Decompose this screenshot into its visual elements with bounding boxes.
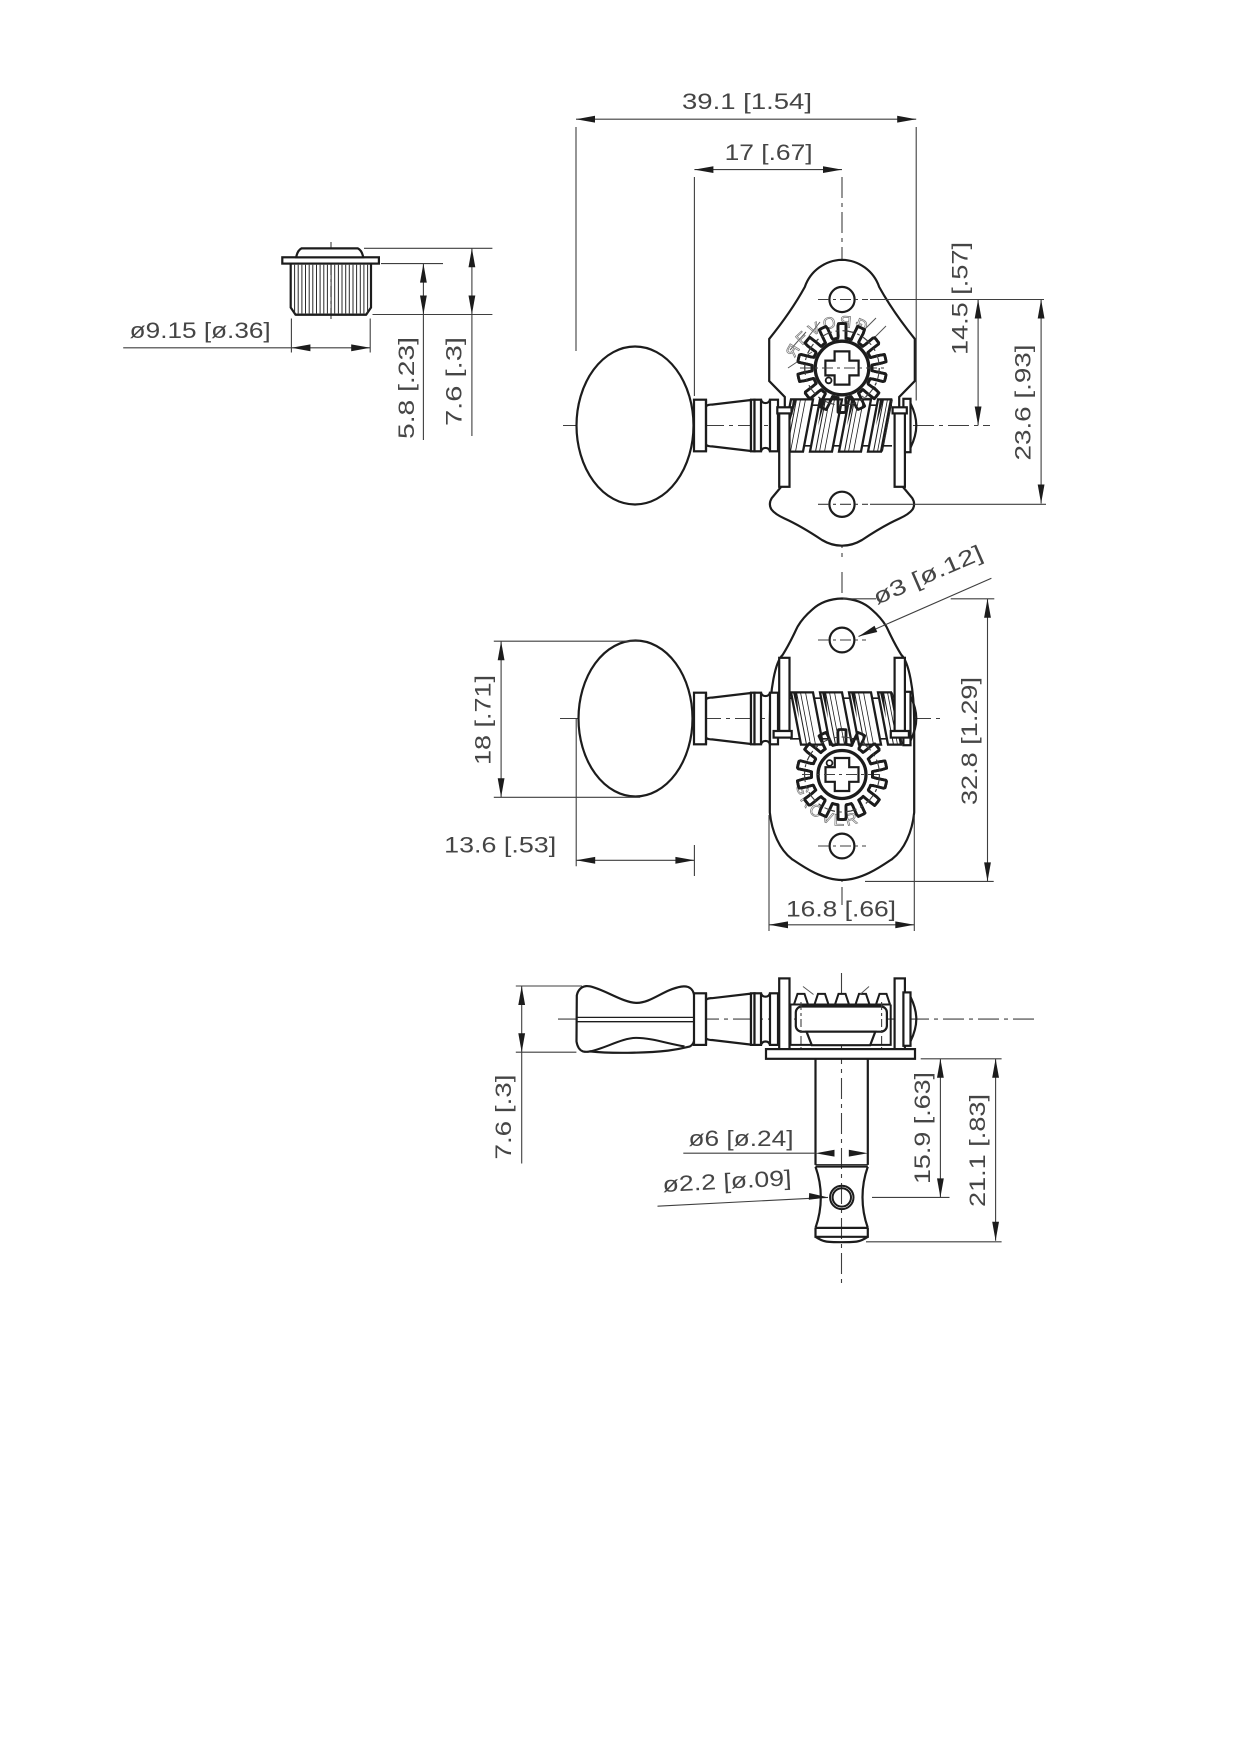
svg-text:18 [.71]: 18 [.71]	[471, 675, 496, 765]
svg-text:13.6 [.53]: 13.6 [.53]	[444, 832, 556, 857]
svg-text:16.8 [.66]: 16.8 [.66]	[786, 897, 896, 922]
svg-text:ø9.15 [ø.36]: ø9.15 [ø.36]	[130, 318, 271, 343]
svg-text:15.9 [.63]: 15.9 [.63]	[910, 1072, 935, 1184]
svg-text:23.6 [.93]: 23.6 [.93]	[1011, 345, 1036, 461]
svg-text:7.6 [.3]: 7.6 [.3]	[491, 1075, 516, 1160]
svg-text:7.6 [.3]: 7.6 [.3]	[442, 337, 467, 426]
svg-text:32.8 [1.29]: 32.8 [1.29]	[957, 677, 982, 805]
svg-text:21.1 [.83]: 21.1 [.83]	[965, 1094, 990, 1207]
svg-text:14.5 [.57]: 14.5 [.57]	[948, 242, 973, 355]
svg-text:39.1 [1.54]: 39.1 [1.54]	[682, 89, 812, 114]
svg-text:ø6 [ø.24]: ø6 [ø.24]	[689, 1126, 794, 1151]
svg-text:5.8 [.23]: 5.8 [.23]	[394, 337, 419, 439]
svg-text:17 [.67]: 17 [.67]	[725, 140, 813, 165]
